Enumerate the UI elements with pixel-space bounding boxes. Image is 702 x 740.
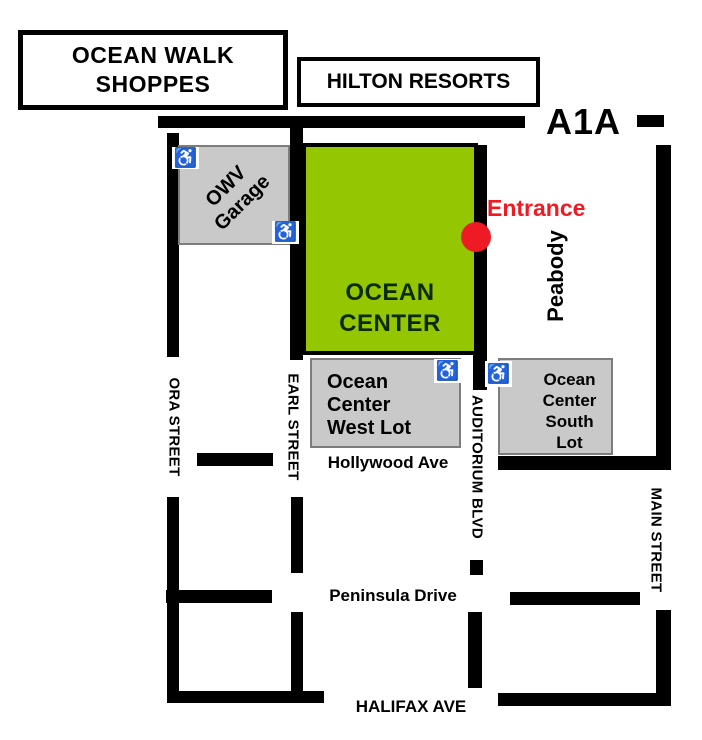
street-label-earl-street: EARL STREET xyxy=(285,373,302,480)
street-label-a1a: A1A xyxy=(546,101,621,143)
road-halifax-right xyxy=(498,693,666,706)
parking-label: OWV Garage xyxy=(193,154,274,235)
street-label-auditorium-blvd: AUDITORIUM BLVD xyxy=(469,395,486,539)
road-auditorium-lower xyxy=(468,612,482,688)
road-peninsula-left xyxy=(166,590,272,603)
road-auditorium-stub xyxy=(470,560,483,575)
road-a1a-stub xyxy=(637,115,664,127)
road-earl-street-lower xyxy=(291,612,303,697)
road-earl-street-mid xyxy=(291,497,303,573)
parking-label: South xyxy=(528,411,611,432)
entrance-label: Entrance xyxy=(487,195,585,222)
street-label-peabody: Peabody xyxy=(543,230,569,322)
road-peninsula-right xyxy=(510,592,640,605)
street-label-ora-street: ORA STREET xyxy=(166,377,183,476)
road-southlot-bottom xyxy=(498,456,666,470)
street-label-halifax-ave: HALIFAX AVE xyxy=(356,697,467,717)
building-ocean-walk-shoppes: OCEAN WALK SHOPPES xyxy=(18,30,288,110)
wheelchair-icon: ♿ xyxy=(172,147,199,169)
road-halifax-left xyxy=(168,691,324,703)
wheelchair-icon: ♿ xyxy=(485,361,512,387)
road-a1a-main xyxy=(158,116,525,128)
building-label: OCEAN WALK xyxy=(72,41,234,70)
parking-label: Center xyxy=(528,390,611,411)
parking-label: West Lot xyxy=(327,417,459,440)
wheelchair-icon: ♿ xyxy=(434,359,461,383)
building-label: CENTER xyxy=(339,308,441,339)
entrance-marker-dot xyxy=(461,222,491,252)
parking-label: Ocean xyxy=(528,369,611,390)
parking-label: Center xyxy=(327,394,459,417)
road-coastal-lower xyxy=(656,610,671,706)
parking-label: Lot xyxy=(528,432,611,453)
street-label-peninsula-drive: Peninsula Drive xyxy=(329,586,457,606)
road-coastal-upper xyxy=(656,145,671,470)
building-label: SHOPPES xyxy=(96,70,211,99)
parking-south-lot: Ocean Center South Lot xyxy=(498,358,613,455)
wheelchair-icon: ♿ xyxy=(272,221,299,244)
building-label: OCEAN xyxy=(345,277,434,308)
street-label-main-street: MAIN STREET xyxy=(648,488,665,593)
road-hollywood-segment xyxy=(197,453,273,466)
building-hilton-resorts: HILTON RESORTS xyxy=(297,57,540,107)
street-label-hollywood-ave: Hollywood Ave xyxy=(328,453,449,473)
building-label: HILTON RESORTS xyxy=(327,70,511,94)
building-ocean-center: OCEAN CENTER xyxy=(302,143,478,355)
map-canvas: OCEAN WALK SHOPPES HILTON RESORTS OWV Ga… xyxy=(0,0,702,740)
